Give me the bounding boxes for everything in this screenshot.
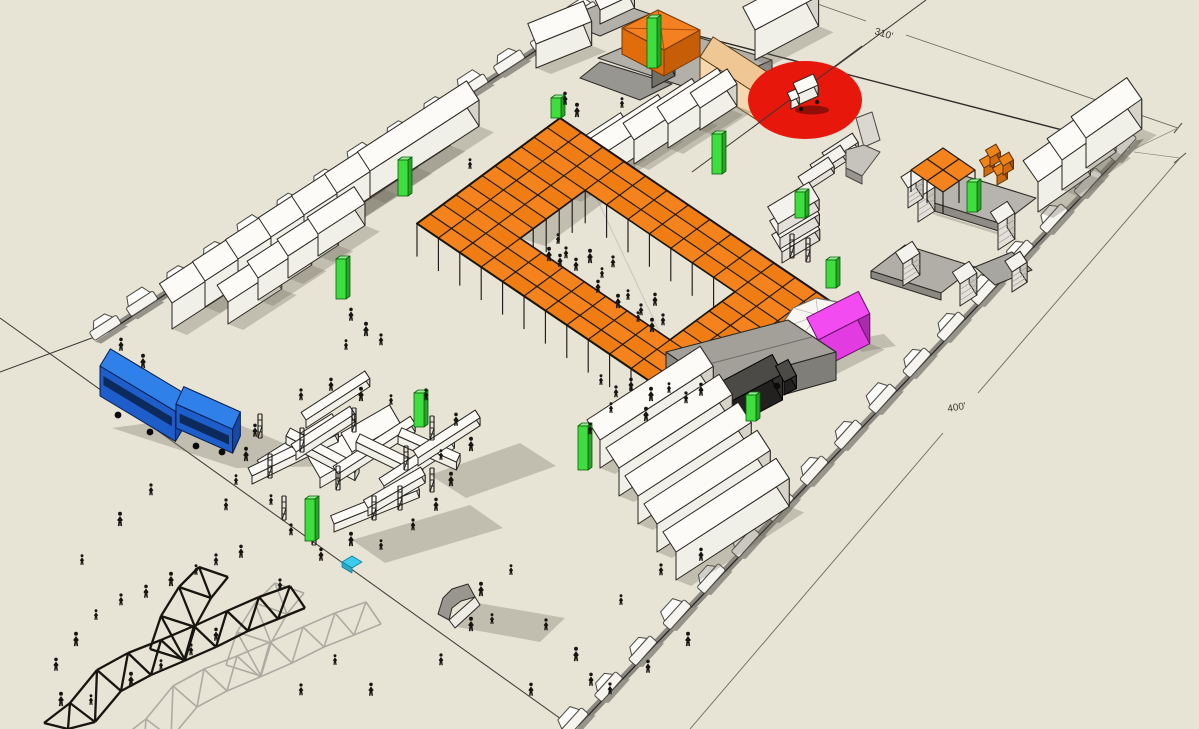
model-scene[interactable]: 310' 400' <box>0 0 1199 729</box>
viewport[interactable]: 310' 400' <box>0 0 1199 729</box>
ground-plane <box>0 0 1199 729</box>
